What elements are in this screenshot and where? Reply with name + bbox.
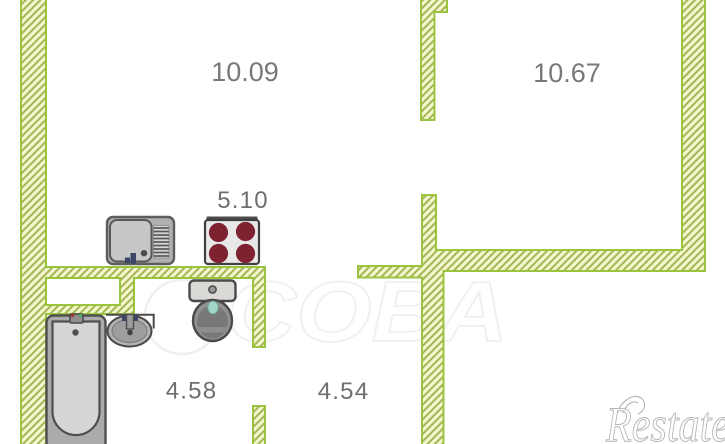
svg-text:4.58: 4.58: [166, 378, 218, 405]
svg-text:10.67: 10.67: [533, 58, 601, 88]
svg-text:Restate: Restate: [605, 396, 725, 444]
svg-text:СОВА: СОВА: [226, 265, 508, 360]
svg-text:4.54: 4.54: [318, 378, 370, 405]
svg-text:10.09: 10.09: [211, 57, 279, 87]
svg-text:5.10: 5.10: [217, 187, 269, 214]
